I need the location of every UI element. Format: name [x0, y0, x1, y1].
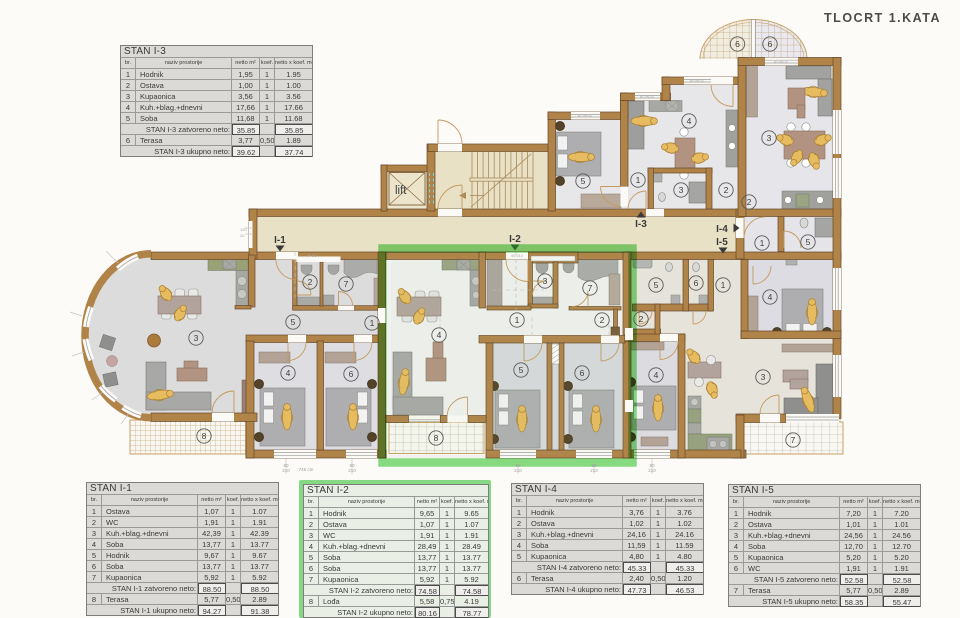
- svg-text:745 cm: 745 cm: [299, 467, 314, 472]
- svg-text:3: 3: [767, 133, 772, 143]
- svg-text:2: 2: [308, 277, 313, 287]
- svg-text:2: 2: [600, 315, 605, 325]
- svg-text:lift: lift: [395, 185, 407, 197]
- svg-text:P=45cm: P=45cm: [690, 80, 704, 84]
- svg-text:4: 4: [654, 370, 659, 380]
- svg-text:5: 5: [654, 280, 659, 290]
- svg-text:1: 1: [636, 175, 641, 185]
- svg-text:4: 4: [687, 116, 692, 126]
- svg-text:8: 8: [434, 433, 439, 443]
- svg-text:I-2: I-2: [509, 234, 521, 245]
- svg-text:120: 120: [240, 227, 247, 232]
- svg-text:5: 5: [519, 365, 524, 375]
- svg-text:I-3: I-3: [635, 219, 647, 230]
- svg-text:20: 20: [240, 233, 245, 238]
- svg-text:I-4: I-4: [716, 224, 728, 235]
- svg-text:6: 6: [580, 368, 585, 378]
- svg-text:8: 8: [202, 431, 207, 441]
- svg-text:1: 1: [515, 315, 520, 325]
- svg-text:I-5: I-5: [716, 237, 728, 248]
- svg-text:2: 2: [724, 185, 729, 195]
- svg-text:4: 4: [286, 368, 291, 378]
- svg-text:1: 1: [370, 318, 375, 328]
- svg-text:3: 3: [761, 372, 766, 382]
- svg-text:5: 5: [291, 317, 296, 327]
- svg-text:7: 7: [588, 283, 593, 293]
- svg-text:4: 4: [768, 292, 773, 302]
- svg-text:6: 6: [735, 39, 740, 49]
- svg-text:P=45cm: P=45cm: [578, 115, 592, 119]
- svg-text:1: 1: [721, 280, 726, 290]
- svg-text:I-1: I-1: [274, 235, 286, 246]
- svg-text:6: 6: [768, 39, 773, 49]
- svg-text:7: 7: [791, 435, 796, 445]
- svg-text:P=45cm: P=45cm: [774, 61, 788, 65]
- svg-text:5: 5: [581, 176, 586, 186]
- svg-text:5: 5: [806, 237, 811, 247]
- svg-text:3: 3: [679, 185, 684, 195]
- svg-text:6: 6: [349, 369, 354, 379]
- svg-text:2: 2: [639, 314, 644, 324]
- svg-text:6: 6: [694, 278, 699, 288]
- svg-text:2: 2: [747, 197, 752, 207]
- svg-text:4: 4: [437, 330, 442, 340]
- svg-text:3: 3: [543, 276, 548, 286]
- svg-text:P=45cm: P=45cm: [640, 96, 654, 100]
- svg-text:7: 7: [344, 279, 349, 289]
- svg-text:1: 1: [760, 238, 765, 248]
- svg-text:P=90: P=90: [308, 254, 317, 258]
- svg-text:3: 3: [194, 333, 199, 343]
- svg-text:90-210: 90-210: [511, 254, 523, 258]
